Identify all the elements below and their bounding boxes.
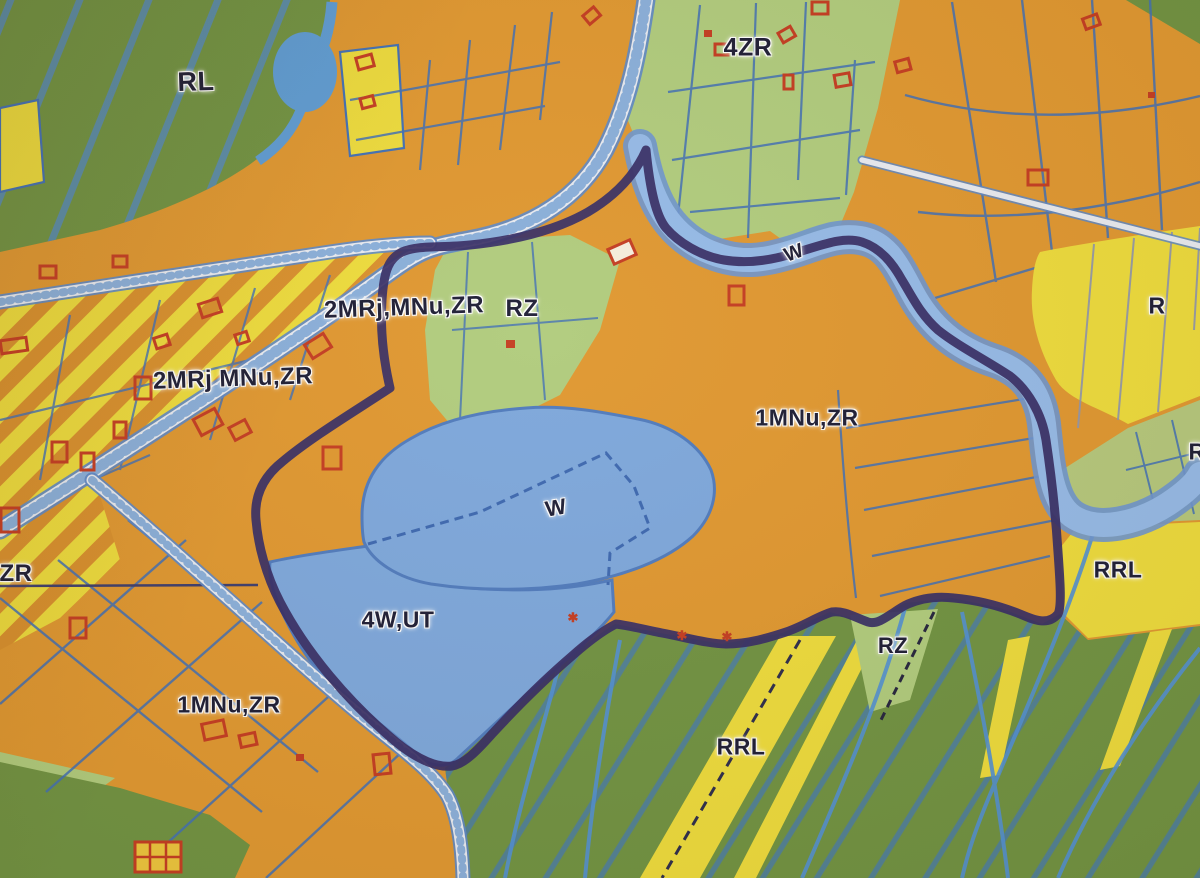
zoning-map: ✱✱✱ RL4ZR2MRj,MNu,ZRRZ2MRj MNu,ZRW1MNu,Z… [0,0,1200,878]
zoning-map-canvas [0,0,1200,878]
zone-rrl-right [1060,522,1200,638]
yellow-building [135,842,181,872]
